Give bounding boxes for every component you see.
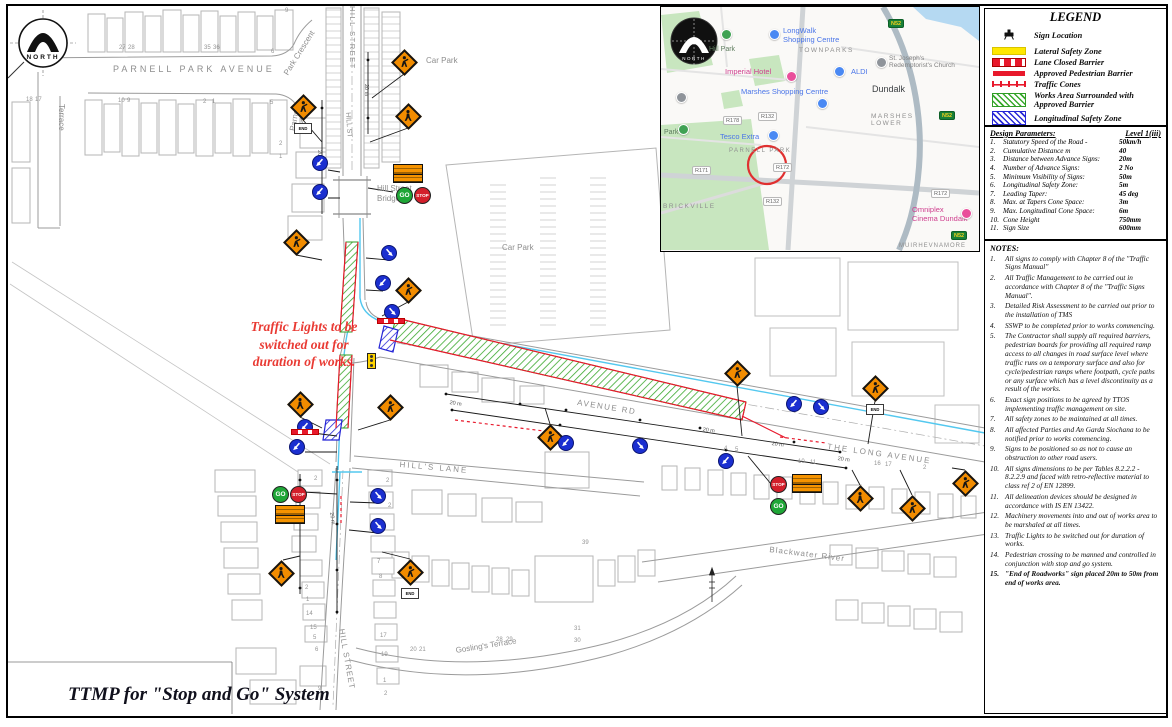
param-label: Cumulative Distance m bbox=[1003, 147, 1119, 156]
lane-closed-icon bbox=[992, 58, 1026, 67]
road-number-badge: R132 bbox=[763, 197, 782, 206]
note-number: 9. bbox=[990, 445, 1005, 463]
house-number: 2 bbox=[923, 465, 926, 471]
house-number: 1 bbox=[306, 597, 309, 603]
house-number: 30 bbox=[574, 638, 581, 644]
house-number: 5 bbox=[313, 635, 316, 641]
house-number: 2 bbox=[388, 503, 391, 509]
note-text: SSWP to be completed prior to works comm… bbox=[1005, 322, 1161, 331]
map-label: Omniplex Cinema Dundalk bbox=[912, 206, 967, 223]
note-text: "End of Roadworks" sign placed 20m to 50… bbox=[1005, 570, 1161, 588]
map-label: PARNELL PARK bbox=[729, 148, 791, 155]
house-number: 29 bbox=[506, 637, 513, 643]
pedestrian-warning-sign bbox=[268, 560, 294, 586]
param-label: Leading Taper: bbox=[1003, 190, 1119, 199]
keep-left-arrow-icon bbox=[787, 397, 801, 411]
pedestrian-icon bbox=[853, 491, 867, 505]
lateral-icon bbox=[992, 47, 1026, 55]
house-number: 10 bbox=[118, 98, 125, 104]
stop-go-info-board bbox=[792, 474, 822, 493]
pedestrian-warning-sign bbox=[287, 391, 313, 417]
house-number: 31 bbox=[574, 626, 581, 632]
roadworks-warning-sign bbox=[283, 229, 309, 255]
house-number: 17 bbox=[885, 462, 892, 468]
design-parameters-panel: Design Parameters: Level 1(iii) 1.Statut… bbox=[984, 126, 1167, 240]
house-number: 2 bbox=[305, 585, 308, 591]
dimension-label: 20 m bbox=[702, 427, 715, 435]
note-item: 15."End of Roadworks" sign placed 20m to… bbox=[990, 570, 1161, 588]
street-label: Car Park bbox=[426, 56, 458, 65]
house-number: 2 bbox=[386, 478, 389, 484]
legend-swatch-cell bbox=[991, 93, 1027, 107]
keep-left-arrow-icon bbox=[371, 519, 385, 533]
map-poi-icon bbox=[961, 208, 972, 219]
param-value: 3m bbox=[1119, 198, 1161, 207]
param-number: 6. bbox=[990, 181, 1003, 190]
design-parameter-row: 1.Statutory Speed of the Road -50km/h bbox=[990, 138, 1161, 147]
ped-barrier-icon bbox=[993, 71, 1025, 76]
note-text: Pedestrian crossing to be manned and con… bbox=[1005, 551, 1161, 569]
cones-icon bbox=[992, 80, 1026, 88]
roadworks-warning-sign bbox=[290, 94, 316, 120]
param-label: Statutory Speed of the Road - bbox=[1003, 138, 1119, 147]
road-number-badge: N52 bbox=[939, 111, 955, 120]
note-item: 10.All signs dimensions to be per Tables… bbox=[990, 465, 1161, 492]
street-label: PARNELL PARK AVENUE bbox=[113, 64, 275, 74]
map-label: Tesco Extra bbox=[720, 133, 759, 142]
keep-left-sign bbox=[632, 438, 648, 454]
road-number-badge: N52 bbox=[951, 231, 967, 240]
house-number: 4 bbox=[724, 446, 727, 452]
param-label: Sign Size bbox=[1003, 224, 1119, 233]
param-number: 1. bbox=[990, 138, 1003, 147]
go-sign: GO bbox=[272, 486, 289, 503]
roadworks-warning-sign bbox=[724, 360, 750, 386]
worker-icon bbox=[397, 55, 411, 69]
design-parameter-row: 4.Number of Advance Signs:2 No bbox=[990, 164, 1161, 173]
note-number: 15. bbox=[990, 570, 1005, 588]
worker-icon bbox=[383, 400, 397, 414]
design-parameter-row: 2.Cumulative Distance m40 bbox=[990, 147, 1161, 156]
end-plate-sign: END bbox=[866, 404, 884, 415]
worker-icon bbox=[543, 430, 557, 444]
param-number: 9. bbox=[990, 207, 1003, 216]
stop-sign: STOP bbox=[770, 476, 787, 493]
street-label: Blackwater River bbox=[769, 545, 846, 563]
house-number: 2 bbox=[279, 141, 282, 147]
pedestrian-warning-sign bbox=[395, 103, 421, 129]
param-label: Distance between Advance Signs: bbox=[1003, 155, 1119, 164]
house-number: 9 bbox=[285, 8, 288, 14]
keep-left-arrow-icon bbox=[376, 276, 390, 290]
note-item: 14.Pedestrian crossing to be manned and … bbox=[990, 551, 1161, 569]
legend-item: Lateral Safety Zone bbox=[985, 47, 1166, 56]
legend-item-label: Traffic Cones bbox=[1034, 80, 1081, 89]
works-area-icon bbox=[992, 93, 1026, 107]
inset-map-labels: LongWalk Shopping CentreTOWNPARKSHill Pa… bbox=[661, 7, 979, 251]
keep-left-sign bbox=[813, 399, 829, 415]
stop-go-info-board bbox=[275, 505, 305, 524]
param-label: Minimum Visibility of Signs: bbox=[1003, 173, 1119, 182]
legend-item: Lane Closed Barrier bbox=[985, 58, 1166, 67]
param-number: 8. bbox=[990, 198, 1003, 207]
keep-left-sign bbox=[289, 439, 305, 455]
legend-item: Traffic Cones bbox=[985, 80, 1166, 89]
board-divider bbox=[793, 484, 821, 485]
legend-item-label: Approved Pedestrian Barrier bbox=[1034, 69, 1133, 78]
worker-icon bbox=[403, 565, 417, 579]
note-number: 1. bbox=[990, 255, 1005, 273]
house-number: 20 bbox=[410, 647, 417, 653]
param-label: Max. at Tapers Cone Space: bbox=[1003, 198, 1119, 207]
street-label: HILL'S LANE bbox=[399, 460, 468, 475]
note-item: 9.Signs to be positioned so as not to ca… bbox=[990, 445, 1161, 463]
keep-left-arrow-icon bbox=[382, 246, 396, 260]
pedestrian-icon bbox=[401, 109, 415, 123]
dimension-label: 20 m bbox=[837, 456, 850, 464]
house-number: 1 bbox=[383, 678, 386, 684]
legend-swatch-cell bbox=[991, 80, 1027, 88]
design-parameter-row: 10.Cone Height750mm bbox=[990, 216, 1161, 225]
keep-left-arrow-icon bbox=[814, 400, 828, 414]
param-value: 5m bbox=[1119, 181, 1161, 190]
street-label: Terrace bbox=[57, 104, 66, 131]
note-number: 2. bbox=[990, 274, 1005, 301]
board-divider bbox=[276, 515, 304, 516]
street-label: Car Park bbox=[502, 243, 534, 252]
param-value: 600mm bbox=[1119, 224, 1161, 233]
stop-sign: STOP bbox=[414, 187, 431, 204]
note-item: 5.The Contractor shall supply all requir… bbox=[990, 332, 1161, 394]
param-value: 45 deg bbox=[1119, 190, 1161, 199]
house-number: 10 bbox=[798, 459, 805, 465]
map-label: Imperial Hotel bbox=[725, 68, 771, 77]
house-number: 17 bbox=[380, 633, 387, 639]
map-poi-icon bbox=[769, 29, 780, 40]
go-sign: GO bbox=[396, 187, 413, 204]
note-text: All affected Parties and An Garda Siocha… bbox=[1005, 426, 1161, 444]
street-label: AVENUE RD bbox=[577, 398, 637, 416]
street-label: HILL STREET bbox=[347, 6, 356, 70]
design-parameter-row: 8.Max. at Tapers Cone Space:3m bbox=[990, 198, 1161, 207]
param-number: 7. bbox=[990, 190, 1003, 199]
legend-item: Longitudinal Safety Zone bbox=[985, 111, 1166, 125]
legend-items: Sign LocationLateral Safety ZoneLane Clo… bbox=[985, 27, 1166, 125]
design-parameters-title: Design Parameters: bbox=[990, 129, 1056, 138]
note-text: All signs dimensions to be per Tables 8.… bbox=[1005, 465, 1161, 492]
end-plate-sign: END bbox=[401, 588, 419, 599]
house-number: 7 bbox=[377, 559, 380, 565]
note-text: All Traffic Management to be carried out… bbox=[1005, 274, 1161, 301]
worker-icon bbox=[730, 366, 744, 380]
house-number: 1 bbox=[212, 99, 215, 105]
note-text: The Contractor shall supply all required… bbox=[1005, 332, 1161, 394]
road-number-badge: R171 bbox=[692, 166, 711, 175]
note-number: 12. bbox=[990, 512, 1005, 530]
map-label: Park bbox=[664, 129, 678, 137]
worker-icon bbox=[868, 381, 882, 395]
map-poi-icon bbox=[721, 29, 732, 40]
keep-left-sign bbox=[381, 245, 397, 261]
house-number: 28 bbox=[128, 45, 135, 51]
house-number: 2 bbox=[314, 476, 317, 482]
legend-swatch-cell bbox=[991, 71, 1027, 76]
param-number: 10. bbox=[990, 216, 1003, 225]
sign-location-icon bbox=[1002, 27, 1016, 45]
param-number: 3. bbox=[990, 155, 1003, 164]
signal-lamp bbox=[370, 355, 373, 358]
dimension-label: 20 m bbox=[363, 84, 369, 96]
keep-left-arrow-icon bbox=[633, 439, 647, 453]
note-item: 12.Machinery movements into and out of w… bbox=[990, 512, 1161, 530]
keep-left-sign bbox=[370, 488, 386, 504]
note-text: Detailed Risk Assessment to be carried o… bbox=[1005, 302, 1161, 320]
param-label: Number of Advance Signs: bbox=[1003, 164, 1119, 173]
note-number: 13. bbox=[990, 532, 1005, 550]
worker-icon bbox=[296, 100, 310, 114]
pedestrian-warning-sign bbox=[847, 485, 873, 511]
house-number: 35 bbox=[204, 45, 211, 51]
legend-item: Works Area Surrounded with Approved Barr… bbox=[985, 91, 1166, 110]
house-number: 14 bbox=[306, 611, 313, 617]
keep-left-sign bbox=[786, 396, 802, 412]
keep-left-sign bbox=[718, 453, 734, 469]
legend-swatch-cell bbox=[991, 58, 1027, 67]
note-text: Exact sign positions to be agreed by TTO… bbox=[1005, 396, 1161, 414]
note-number: 6. bbox=[990, 396, 1005, 414]
notes-panel: NOTES: 1.All signs to comply with Chapte… bbox=[984, 240, 1167, 714]
map-poi-icon bbox=[676, 92, 687, 103]
legend-swatch-cell bbox=[991, 27, 1027, 45]
notes-list: 1.All signs to comply with Chapter 8 of … bbox=[990, 255, 1161, 588]
note-item: 4.SSWP to be completed prior to works co… bbox=[990, 322, 1161, 331]
keep-left-sign bbox=[312, 155, 328, 171]
road-number-badge: N52 bbox=[888, 19, 904, 28]
street-label: HILL STREET bbox=[337, 628, 357, 690]
house-number: 9 bbox=[127, 98, 130, 104]
house-number: 18 bbox=[26, 97, 33, 103]
design-parameter-row: 11.Sign Size600mm bbox=[990, 224, 1161, 233]
house-number: 11 bbox=[810, 460, 816, 466]
note-item: 3.Detailed Risk Assessment to be carried… bbox=[990, 302, 1161, 320]
house-number: 5 bbox=[735, 447, 738, 453]
house-number: 27 bbox=[119, 45, 126, 51]
go-sign: GO bbox=[770, 498, 787, 515]
lane-closed-barrier bbox=[377, 318, 405, 324]
map-poi-icon bbox=[768, 130, 779, 141]
map-poi-icon bbox=[678, 124, 689, 135]
worker-icon bbox=[905, 501, 919, 515]
board-divider bbox=[394, 174, 422, 175]
map-poi-icon bbox=[817, 98, 828, 109]
house-number: 17 bbox=[35, 97, 42, 103]
map-label: MARSHES LOWER bbox=[871, 113, 914, 128]
roadworks-warning-sign bbox=[899, 495, 925, 521]
note-text: All delineation devices should be design… bbox=[1005, 493, 1161, 511]
map-label: ALDI bbox=[851, 68, 868, 77]
note-item: 7.All safety zones to be maintained at a… bbox=[990, 415, 1161, 424]
signal-lamp bbox=[370, 364, 373, 367]
param-number: 11. bbox=[990, 224, 1003, 233]
map-label: TOWNPARKS bbox=[799, 47, 854, 54]
note-item: 13.Traffic Lights to be switched out for… bbox=[990, 532, 1161, 550]
map-label: BRICKVILLE bbox=[663, 203, 716, 210]
roadworks-warning-sign bbox=[395, 277, 421, 303]
param-value: 40 bbox=[1119, 147, 1161, 156]
param-value: 20m bbox=[1119, 155, 1161, 164]
road-number-badge: R172 bbox=[931, 189, 950, 198]
keep-left-sign bbox=[375, 275, 391, 291]
map-poi-icon bbox=[876, 57, 887, 68]
road-number-badge: R172 bbox=[773, 163, 792, 172]
param-number: 4. bbox=[990, 164, 1003, 173]
long-zone-icon bbox=[992, 111, 1026, 125]
stop-sign: STOP bbox=[290, 486, 307, 503]
note-number: 7. bbox=[990, 415, 1005, 424]
location-inset-map: NORTH LongWalk Shopping CentreTOWNPARKSH… bbox=[660, 6, 980, 252]
legend-item-label: Lateral Safety Zone bbox=[1034, 47, 1102, 56]
legend-swatch-cell bbox=[991, 111, 1027, 125]
keep-left-arrow-icon bbox=[559, 436, 573, 450]
house-number: 28 bbox=[496, 637, 503, 643]
legend-item-label: Sign Location bbox=[1034, 31, 1082, 40]
house-number: 15 bbox=[310, 625, 317, 631]
note-item: 2.All Traffic Management to be carried o… bbox=[990, 274, 1161, 301]
worker-icon bbox=[958, 476, 972, 490]
keep-left-arrow-icon bbox=[313, 156, 327, 170]
street-label: Park Crescent bbox=[282, 29, 317, 77]
dimension-label: 20 m bbox=[328, 512, 336, 525]
roadworks-warning-sign bbox=[862, 375, 888, 401]
end-plate-sign: END bbox=[294, 123, 312, 134]
signal-lamp bbox=[370, 359, 373, 362]
param-value: 6m bbox=[1119, 207, 1161, 216]
note-text: Traffic Lights to be switched out for du… bbox=[1005, 532, 1161, 550]
param-value: 750mm bbox=[1119, 216, 1161, 225]
pedestrian-icon bbox=[274, 566, 288, 580]
map-label: Dundalk bbox=[872, 84, 905, 94]
roadworks-warning-sign bbox=[397, 559, 423, 585]
note-number: 5. bbox=[990, 332, 1005, 394]
design-parameter-row: 3.Distance between Advance Signs:20m bbox=[990, 155, 1161, 164]
traffic-signal-icon bbox=[367, 353, 376, 369]
note-number: 3. bbox=[990, 302, 1005, 320]
house-number: 6 bbox=[271, 49, 274, 55]
design-parameter-row: 6.Longitudinal Safety Zone:5m bbox=[990, 181, 1161, 190]
legend-item: Approved Pedestrian Barrier bbox=[985, 69, 1166, 78]
param-value: 50m bbox=[1119, 173, 1161, 182]
legend-item: Sign Location bbox=[985, 27, 1166, 45]
map-label: Hill Park bbox=[709, 46, 735, 54]
design-parameters-rows: 1.Statutory Speed of the Road -50km/h2.C… bbox=[990, 138, 1161, 233]
roadworks-warning-sign bbox=[952, 470, 978, 496]
lane-closed-barrier bbox=[291, 429, 319, 435]
legend-item-label: Works Area Surrounded with Approved Barr… bbox=[1034, 91, 1134, 110]
notes-title: NOTES: bbox=[990, 244, 1161, 253]
note-text: All safety zones to be maintained at all… bbox=[1005, 415, 1161, 424]
keep-left-arrow-icon bbox=[385, 305, 399, 319]
design-parameter-row: 7.Leading Taper:45 deg bbox=[990, 190, 1161, 199]
note-number: 8. bbox=[990, 426, 1005, 444]
street-label: HILL ST bbox=[343, 112, 353, 138]
keep-left-sign bbox=[370, 518, 386, 534]
keep-left-arrow-icon bbox=[719, 454, 733, 468]
param-label: Max. Longitudinal Cone Space: bbox=[1003, 207, 1119, 216]
house-number: 1 bbox=[279, 154, 282, 160]
note-number: 4. bbox=[990, 322, 1005, 331]
note-item: 1.All signs to comply with Chapter 8 of … bbox=[990, 255, 1161, 273]
dimension-label: 20 m bbox=[449, 400, 462, 408]
legend-panel: LEGEND Sign LocationLateral Safety ZoneL… bbox=[984, 8, 1167, 126]
house-number: 2 bbox=[203, 99, 206, 105]
worker-icon bbox=[401, 283, 415, 297]
worker-icon bbox=[289, 235, 303, 249]
house-number: 16 bbox=[874, 461, 881, 467]
note-item: 11.All delineation devices should be des… bbox=[990, 493, 1161, 511]
design-parameters-level: Level 1(iii) bbox=[1125, 129, 1161, 138]
design-parameter-row: 5.Minimum Visibility of Signs:50m bbox=[990, 173, 1161, 182]
map-label: Marshes Shopping Centre bbox=[741, 88, 828, 97]
map-poi-icon bbox=[834, 66, 845, 77]
param-number: 2. bbox=[990, 147, 1003, 156]
house-number: 8 bbox=[379, 574, 382, 580]
house-number: 6 bbox=[315, 647, 318, 653]
map-label: St. Joseph's Redemptorist's Church bbox=[889, 55, 955, 70]
house-number: 5 bbox=[270, 100, 273, 106]
note-item: 8.All affected Parties and An Garda Sioc… bbox=[990, 426, 1161, 444]
house-number: 21 bbox=[419, 647, 426, 653]
note-number: 10. bbox=[990, 465, 1005, 492]
legend-item-label: Longitudinal Safety Zone bbox=[1034, 114, 1122, 123]
legend-title: LEGEND bbox=[985, 10, 1166, 25]
dimension-label: 20 m bbox=[771, 441, 784, 449]
road-number-badge: R178 bbox=[723, 116, 742, 125]
param-number: 5. bbox=[990, 173, 1003, 182]
design-parameter-row: 9.Max. Longitudinal Cone Space:6m bbox=[990, 207, 1161, 216]
road-number-badge: R132 bbox=[758, 112, 777, 121]
keep-left-arrow-icon bbox=[290, 440, 304, 454]
design-parameters-header: Design Parameters: Level 1(iii) bbox=[990, 129, 1161, 138]
house-number: 39 bbox=[582, 540, 589, 546]
keep-left-sign bbox=[312, 184, 328, 200]
keep-left-arrow-icon bbox=[313, 185, 327, 199]
map-poi-icon bbox=[786, 71, 797, 82]
param-value: 2 No bbox=[1119, 164, 1161, 173]
house-number: 36 bbox=[213, 45, 220, 51]
param-label: Cone Height bbox=[1003, 216, 1119, 225]
note-number: 14. bbox=[990, 551, 1005, 569]
legend-swatch-cell bbox=[991, 47, 1027, 55]
roadworks-warning-sign bbox=[391, 49, 417, 75]
pedestrian-icon bbox=[293, 397, 307, 411]
legend-item-label: Lane Closed Barrier bbox=[1034, 58, 1104, 67]
note-text: All signs to comply with Chapter 8 of th… bbox=[1005, 255, 1161, 273]
keep-left-sign bbox=[558, 435, 574, 451]
keep-left-arrow-icon bbox=[371, 489, 385, 503]
house-number: 19 bbox=[381, 652, 388, 658]
stop-go-info-board bbox=[393, 164, 423, 183]
house-number: 2 bbox=[384, 691, 387, 697]
note-text: Signs to be positioned so as not to caus… bbox=[1005, 445, 1161, 463]
note-item: 6.Exact sign positions to be agreed by T… bbox=[990, 396, 1161, 414]
param-value: 50km/h bbox=[1119, 138, 1161, 147]
note-number: 11. bbox=[990, 493, 1005, 511]
note-text: Machinery movements into and out of work… bbox=[1005, 512, 1161, 530]
param-label: Longitudinal Safety Zone: bbox=[1003, 181, 1119, 190]
map-label: LongWalk Shopping Centre bbox=[783, 27, 839, 44]
roadworks-warning-sign bbox=[377, 394, 403, 420]
map-label: MUIRHEVNAMORE bbox=[899, 243, 966, 250]
